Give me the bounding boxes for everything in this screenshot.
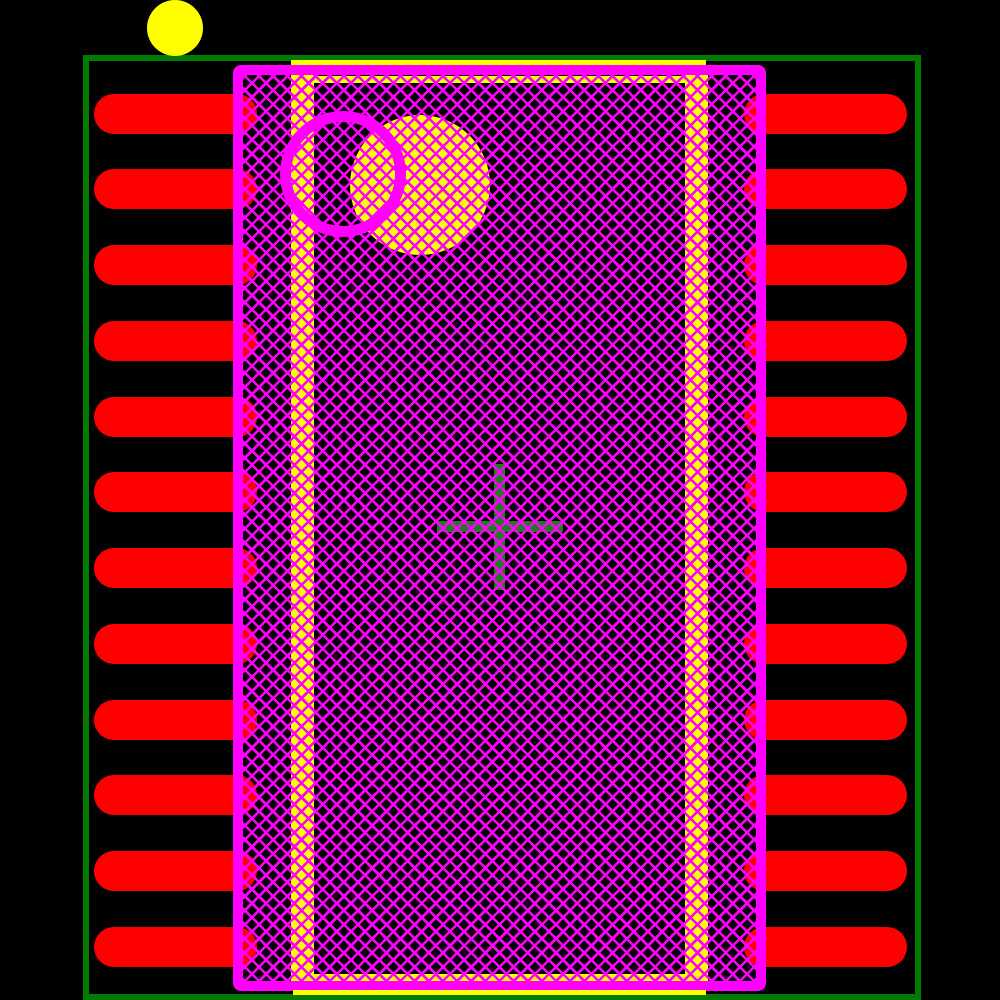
assembly-line-bottom-solid: [293, 990, 706, 995]
pad-right-6: [744, 472, 907, 512]
pad-right-8: [744, 624, 907, 664]
silkscreen-pin1-ring: [280, 111, 406, 237]
pad-right-3: [744, 245, 907, 285]
pad-right-1: [744, 94, 907, 134]
footprint-canvas: [0, 0, 1000, 1000]
assembly-line-top-solid: [291, 60, 706, 65]
pad-right-11: [744, 851, 907, 891]
pad-right-9: [744, 700, 907, 740]
pad-right-10: [744, 775, 907, 815]
pad-right-12: [744, 927, 907, 967]
pin1-indicator-dot: [147, 0, 203, 56]
pad-right-5: [744, 397, 907, 437]
pad-right-2: [744, 169, 907, 209]
pad-right-7: [744, 548, 907, 588]
pad-right-4: [744, 321, 907, 361]
